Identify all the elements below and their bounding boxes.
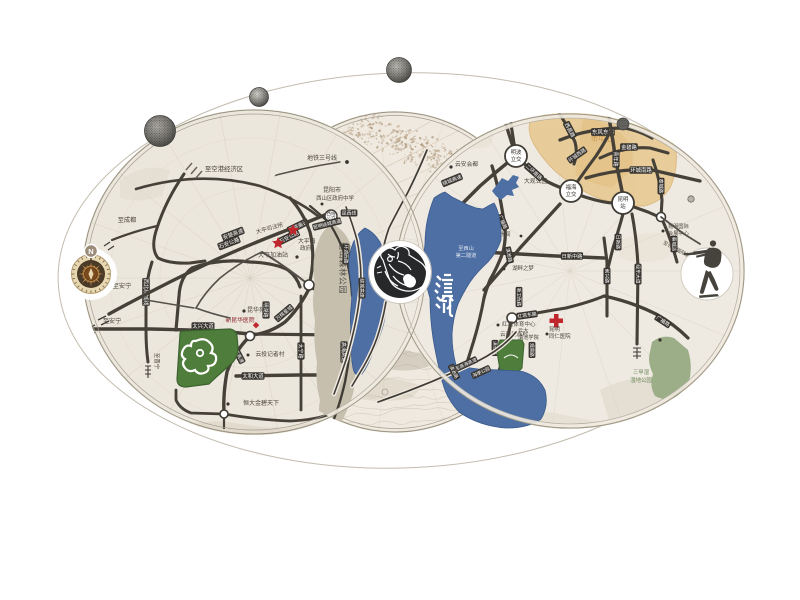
svg-text:湖畔之梦: 湖畔之梦 xyxy=(512,264,534,272)
svg-text:日新路: 日新路 xyxy=(614,235,621,250)
svg-text:站: 站 xyxy=(620,202,626,210)
svg-text:前兴路: 前兴路 xyxy=(603,269,610,284)
svg-text:金碧路: 金碧路 xyxy=(621,143,637,151)
svg-text:立交: 立交 xyxy=(511,155,522,163)
svg-text:环城南路: 环城南路 xyxy=(630,166,652,174)
svg-text:湿地公园: 湿地公园 xyxy=(630,376,652,384)
svg-text:恒大金碧天下: 恒大金碧天下 xyxy=(243,399,279,407)
svg-text:青年路: 青年路 xyxy=(612,151,619,166)
svg-text:经东大道: 经东大道 xyxy=(634,264,641,283)
svg-text:云安会都: 云安会都 xyxy=(455,160,478,168)
svg-text:至空港经济区: 至空港经济区 xyxy=(205,164,244,173)
svg-text:立交: 立交 xyxy=(566,190,577,198)
svg-text:福海: 福海 xyxy=(566,183,577,191)
svg-text:N: N xyxy=(88,247,93,256)
svg-text:昆西线: 昆西线 xyxy=(342,210,357,217)
svg-text:至安宁: 至安宁 xyxy=(103,317,122,325)
svg-text:至晋宁: 至晋宁 xyxy=(153,353,161,369)
svg-text:绕城高速: 绕城高速 xyxy=(358,278,365,297)
svg-text:同仁医院: 同仁医院 xyxy=(549,332,571,340)
svg-text:云大: 云大 xyxy=(518,326,528,334)
svg-text:日新中路: 日新中路 xyxy=(562,252,584,260)
svg-text:大观公园: 大观公园 xyxy=(524,177,547,185)
svg-text:昆阳市: 昆阳市 xyxy=(323,186,341,194)
svg-text:新卫西路: 新卫西路 xyxy=(515,288,522,307)
svg-text:三甲湿: 三甲湿 xyxy=(633,368,650,376)
svg-text:至成都: 至成都 xyxy=(118,216,137,224)
svg-text:地铁三号线: 地铁三号线 xyxy=(307,154,337,162)
svg-text:至安宁: 至安宁 xyxy=(113,282,132,290)
svg-text:昆华苑: 昆华苑 xyxy=(247,306,265,314)
svg-text:红塔体育中心: 红塔体育中心 xyxy=(502,320,536,328)
svg-text:环湖西路: 环湖西路 xyxy=(342,244,349,263)
svg-text:太兴大道: 太兴大道 xyxy=(192,322,214,330)
svg-text:第二隧道: 第二隧道 xyxy=(456,251,477,259)
svg-text:昆明: 昆明 xyxy=(549,326,560,333)
svg-text:政府: 政府 xyxy=(300,244,312,252)
svg-text:明波: 明波 xyxy=(511,148,522,156)
svg-text:西山区政府中学: 西山区政府中学 xyxy=(316,194,354,202)
svg-text:至西山: 至西山 xyxy=(458,244,474,252)
svg-text:昆明: 昆明 xyxy=(618,196,629,203)
svg-text:太和大道: 太和大道 xyxy=(242,372,264,380)
svg-text:大平镇: 大平镇 xyxy=(298,237,316,245)
svg-text:观景路: 观景路 xyxy=(528,343,535,357)
svg-text:太宁路: 太宁路 xyxy=(297,343,304,358)
svg-text:云投记者村: 云投记者村 xyxy=(256,350,285,358)
svg-text:泰城路: 泰城路 xyxy=(657,179,664,194)
